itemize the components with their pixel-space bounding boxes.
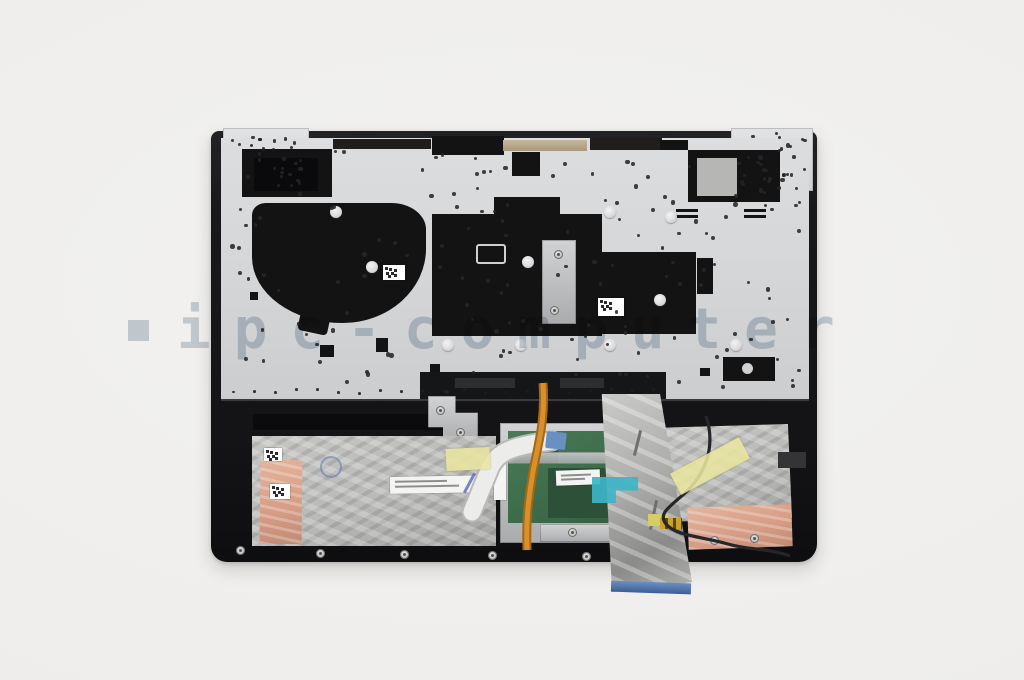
product-photo: ipc-computer [0, 0, 1024, 680]
screw-boss [730, 339, 742, 351]
top-connector-block-a [432, 136, 504, 155]
latch-mark-left [676, 209, 698, 218]
screw-boss [665, 211, 677, 223]
qr-code-label-foil [264, 448, 282, 461]
mylar-cutout-window [476, 244, 506, 264]
screw-touchpad [568, 528, 577, 537]
screw-boss [515, 339, 527, 351]
camera-block [512, 152, 540, 176]
brass-shield-strip [503, 140, 587, 151]
copper-tape-right [687, 504, 792, 550]
qr-code-label-fan [383, 265, 405, 280]
plate-cutout-mark [376, 338, 388, 352]
connector-bar-slot [455, 378, 515, 388]
mylar-bit-right-vertical [697, 258, 713, 294]
qr-code-label-copper [270, 484, 290, 499]
plate-cutout-mark [250, 292, 258, 300]
speaker-grille-left [254, 158, 318, 191]
plate-cutout-mark [700, 368, 710, 376]
plate-cutout-mark [276, 286, 288, 294]
screw-bottom-edge [488, 551, 497, 560]
top-mylar-strip-b [590, 138, 662, 150]
etched-case-label [778, 452, 806, 468]
screw-boss [604, 339, 616, 351]
copper-tape-left [260, 460, 303, 544]
screw-bottom-edge [236, 546, 245, 555]
ribbon-connector-tip [611, 581, 691, 595]
screw-boss [442, 339, 454, 351]
screw-copper-2 [750, 534, 759, 543]
gold-terminals [660, 518, 682, 529]
screw-center-plate-2 [550, 306, 559, 315]
center-mylar-top-tab [494, 197, 560, 217]
long-black-bracket [253, 414, 443, 430]
screw-bracket [436, 406, 445, 415]
plate-cutout-mark [320, 345, 334, 357]
screw-boss [604, 206, 616, 218]
fan-mylar-tab [297, 300, 333, 336]
screw-bottom-edge [316, 549, 325, 558]
mylar-bit-hole [742, 363, 753, 374]
screw-bottom-edge [400, 550, 409, 559]
center-mylar-main [432, 214, 602, 336]
touchpad-side-label [494, 452, 506, 500]
latch-mark-right [744, 209, 766, 218]
qr-code-label-center [598, 298, 624, 316]
center-mylar-right [600, 252, 696, 334]
kapton-tape-left [445, 447, 490, 471]
speaker-window-right [697, 158, 737, 196]
screw-copper [710, 536, 719, 545]
screw-boss [330, 206, 342, 218]
connector-bar-slot [560, 378, 604, 388]
top-mylar-strip-a [333, 139, 431, 149]
top-connector-block-b [660, 140, 688, 150]
interior-top-seam [221, 399, 809, 401]
screw-boss [366, 261, 378, 273]
screw-boss [522, 256, 534, 268]
screw-center-plate [554, 250, 563, 259]
info-sticker [390, 475, 490, 494]
screw-boss [654, 294, 666, 306]
watermark-bullet [128, 320, 149, 341]
screw-bottom-edge [582, 552, 591, 561]
